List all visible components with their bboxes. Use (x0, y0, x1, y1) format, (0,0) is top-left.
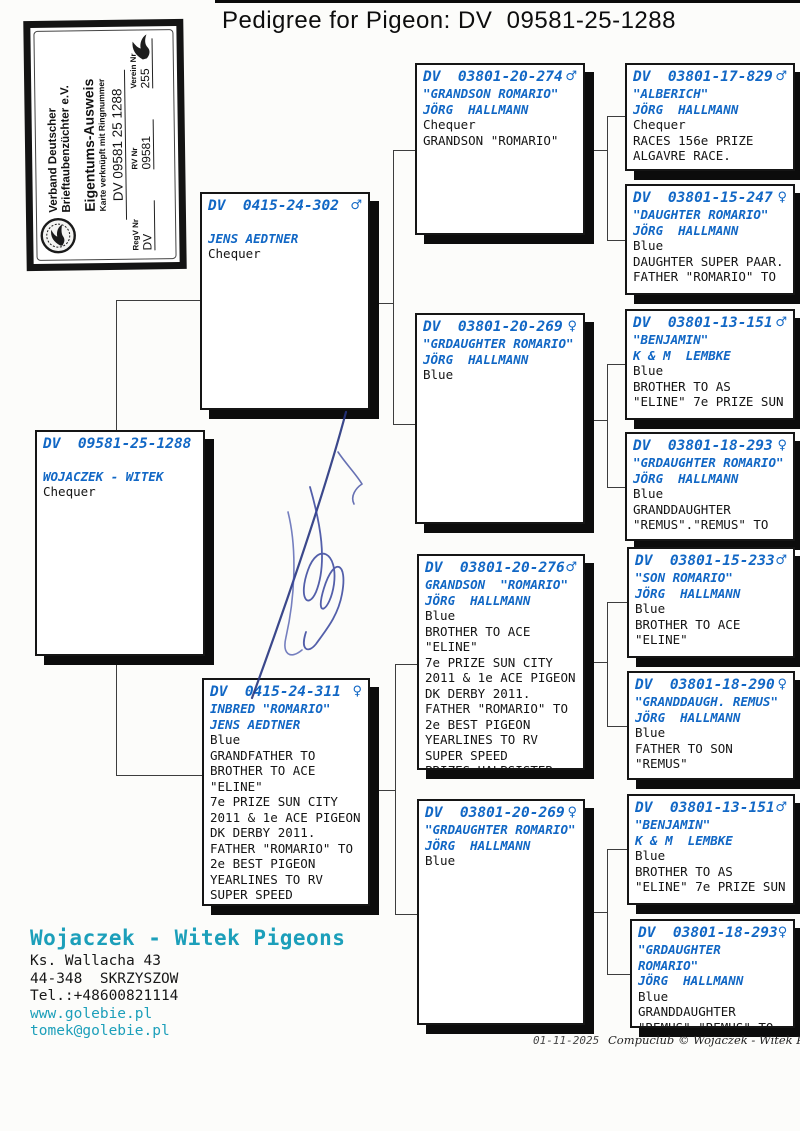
pedigree-box-greatgrandparent-3: DV 03801-13-151♂ "BENJAMIN" K & M LEMBKE… (625, 309, 795, 420)
pigeon-name-breeder: "GRANDSON ROMARIO" JÖRG HALLMANN (423, 86, 577, 117)
connector-line (370, 303, 393, 304)
connector-line (116, 300, 200, 301)
pigeon-name-breeder: "SON ROMARIO" JÖRG HALLMANN (635, 570, 787, 601)
pigeon-details: Blue BROTHER TO AS "ELINE" 7e PRIZE SUN (635, 848, 787, 895)
pedigree-box-greatgrandparent-1: DV 03801-17-829♂ "ALBERICH" JÖRG HALLMAN… (625, 63, 795, 171)
ring-number: DV 0415-24-302 (208, 198, 339, 215)
pigeon-details: Chequer GRANDSON "ROMARIO" (423, 117, 577, 148)
pigeon-name-breeder: "GRANDDAUGH. REMUS" JÖRG HALLMANN (635, 694, 787, 725)
connector-line (116, 300, 117, 430)
page-title: Pedigree for Pigeon: DV 09581-25-1288 (222, 7, 676, 35)
connector-line (116, 658, 117, 776)
pedigree-box-mother: DV 0415-24-311♀ INBRED "ROMARIO" JENS AE… (202, 678, 370, 906)
ring-number: DV 03801-18-290 (635, 677, 775, 694)
ring-number: DV 03801-17-829 (633, 69, 773, 86)
connector-line (607, 364, 608, 488)
signature (250, 392, 400, 706)
connector-line (395, 914, 417, 915)
connector-line (607, 602, 608, 727)
ownership-card: Verband Deutscher Brieftaubenzüchter e.V… (23, 19, 186, 271)
connector-line (585, 662, 607, 663)
pigeon-name-breeder: "GRDAUGHTER ROMARIO" JÖRG HALLMANN (638, 942, 787, 989)
pigeon-name-breeder: "BENJAMIN" K & M LEMBKE (633, 332, 787, 363)
female-symbol: ♀ (777, 190, 787, 205)
pigeon-details: Blue GRANDDAUGHTER "REMUS"."REMUS" TO (633, 486, 787, 533)
pigeon-name-breeder: GRANDSON "ROMARIO" JÖRG HALLMANN (425, 577, 577, 608)
connector-line (607, 364, 625, 365)
female-symbol: ♀ (567, 319, 577, 334)
male-symbol: ♂ (565, 560, 577, 575)
card-ring-number: DV 09581 25 1288 (109, 70, 127, 220)
ring-number: DV 03801-13-151 (633, 315, 773, 332)
pigeon-name-breeder: "DAUGHTER ROMARIO" JÖRG HALLMANN (633, 207, 787, 238)
female-symbol: ♀ (777, 438, 787, 453)
scan-edge-line (215, 0, 800, 3)
connector-line (371, 790, 395, 791)
contact-links: www.golebie.pl tomek@golebie.pl (30, 1006, 345, 1041)
pedigree-box-grandparent-1: DV 03801-20-274♂ "GRANDSON ROMARIO" JÖRG… (415, 63, 585, 235)
ring-number: DV 03801-18-293 (638, 925, 778, 942)
pigeon-details: Blue GRANDDAUGHTER "REMUS","REMUS" TO (638, 989, 787, 1029)
connector-line (607, 116, 608, 241)
contact-address: Ks. Wallacha 43 44-348 SKRZYSZOW Tel.:+4… (30, 953, 345, 1006)
male-symbol: ♂ (350, 198, 362, 213)
pedigree-box-subject: DV 09581-25-1288 WOJACZEK - WITEK Cheque… (35, 430, 205, 656)
pedigree-box-greatgrandparent-4: DV 03801-18-293♀ "GRDAUGHTER ROMARIO" JÖ… (625, 432, 795, 541)
pedigree-box-greatgrandparent-8: DV 03801-18-293♀ "GRDAUGHTER ROMARIO" JÖ… (630, 919, 795, 1028)
connector-line (393, 150, 415, 151)
connector-line (607, 726, 627, 727)
ownership-card-frame: Verband Deutscher Brieftaubenzüchter e.V… (23, 19, 186, 271)
pedigree-box-greatgrandparent-7: DV 03801-13-151♂ "BENJAMIN" K & M LEMBKE… (627, 794, 795, 905)
ring-number: DV 03801-20-274 (423, 69, 563, 86)
ring-number: DV 03801-20-269 (425, 805, 565, 822)
connector-line (393, 150, 394, 425)
pigeon-details: Chequer (43, 484, 197, 500)
connector-line (607, 849, 627, 850)
male-symbol: ♂ (775, 69, 787, 84)
pedigree-document: { "title": "Pedigree for Pigeon: DV 0958… (0, 0, 800, 1131)
pigeon-details: Blue BROTHER TO ACE "ELINE" (635, 601, 787, 648)
pedigree-box-grandparent-2: DV 03801-20-269♀ "GRDAUGHTER ROMARIO" JÖ… (415, 313, 585, 524)
connector-line (607, 487, 625, 488)
ring-number: DV 03801-13-151 (635, 800, 775, 817)
pigeon-details: Blue BROTHER TO ACE "ELINE" 7e PRIZE SUN… (425, 608, 577, 770)
ring-number: DV 03801-20-269 (423, 319, 563, 336)
pigeon-details: Blue FATHER TO SON "REMUS" (635, 725, 787, 772)
loft-name: Wojaczek - Witek Pigeons (30, 926, 345, 950)
connector-line (585, 912, 607, 913)
connector-line (585, 420, 607, 421)
male-symbol: ♂ (565, 69, 577, 84)
pigeon-details: Blue (425, 853, 577, 869)
field-value-rv: 09581 (139, 119, 155, 169)
pigeon-logo-icon (129, 33, 156, 61)
connector-line (607, 849, 608, 975)
card-subtitle: Karte verknüpft mit Ringnummer (95, 37, 108, 253)
pigeon-name-breeder: "GRDAUGHTER ROMARIO" JÖRG HALLMANN (425, 822, 577, 853)
connector-line (607, 602, 627, 603)
connector-line (116, 775, 203, 776)
contact-block: Wojaczek - Witek Pigeons Ks. Wallacha 43… (30, 926, 345, 1041)
male-symbol: ♂ (775, 315, 787, 330)
software-copyright: Compuclub © Wojaczek - Witek Pigeon (608, 1033, 800, 1047)
field-value-regv: DV (140, 200, 156, 250)
pigeon-name-breeder: WOJACZEK - WITEK (43, 453, 197, 484)
pedigree-box-greatgrandparent-5: DV 03801-15-233♂ "SON ROMARIO" JÖRG HALL… (627, 547, 795, 658)
pedigree-box-greatgrandparent-2: DV 03801-15-247♀ "DAUGHTER ROMARIO" JÖRG… (625, 184, 795, 295)
pigeon-details: Blue GRANDFATHER TO BROTHER TO ACE "ELIN… (210, 732, 362, 903)
pigeon-details: Blue DAUGHTER SUPER PAAR. FATHER "ROMARI… (633, 238, 787, 285)
connector-line (607, 974, 630, 975)
female-symbol: ♀ (777, 677, 787, 692)
federation-name: Verband Deutscher Brieftaubenzüchter e.V… (46, 85, 73, 213)
female-symbol: ♀ (778, 925, 788, 940)
male-symbol: ♂ (775, 800, 787, 815)
connector-line (607, 240, 625, 241)
pedigree-box-greatgrandparent-6: DV 03801-18-290♀ "GRANDDAUGH. REMUS" JÖR… (627, 671, 795, 780)
pigeon-name-breeder: "ALBERICH" JÖRG HALLMANN (633, 86, 787, 117)
pigeon-name-breeder: JENS AEDTNER (208, 215, 362, 246)
pedigree-box-father: DV 0415-24-302♂ JENS AEDTNER Chequer (200, 192, 370, 410)
pedigree-box-grandparent-4: DV 03801-20-269♀ "GRDAUGHTER ROMARIO" JÖ… (417, 799, 585, 1025)
pigeon-name-breeder: "BENJAMIN" K & M LEMBKE (635, 817, 787, 848)
connector-line (607, 116, 625, 117)
pigeon-details: Blue (423, 367, 577, 383)
ring-number: DV 03801-20-276 (425, 560, 565, 577)
male-symbol: ♂ (775, 553, 787, 568)
pigeon-name-breeder: "GRDAUGHTER ROMARIO" JÖRG HALLMANN (633, 455, 787, 486)
federation-emblem-icon (40, 217, 81, 254)
pigeon-name-breeder: "GRDAUGHTER ROMARIO" JÖRG HALLMANN (423, 336, 577, 367)
female-symbol: ♀ (567, 805, 577, 820)
pigeon-details: Chequer (208, 246, 362, 262)
pigeon-details: Chequer RACES 156e PRIZE ALGAVRE RACE. (633, 117, 787, 164)
pigeon-details: Blue BROTHER TO AS "ELINE" 7e PRIZE SUN (633, 363, 787, 410)
print-date: 01-11-2025 (533, 1034, 599, 1047)
ring-number: DV 03801-15-233 (635, 553, 775, 570)
ring-number: DV 03801-18-293 (633, 438, 773, 455)
connector-line (585, 150, 607, 151)
ring-number: DV 03801-15-247 (633, 190, 773, 207)
ring-number: DV 09581-25-1288 (43, 436, 191, 453)
pedigree-box-grandparent-3: DV 03801-20-276♂ GRANDSON "ROMARIO" JÖRG… (417, 554, 585, 770)
